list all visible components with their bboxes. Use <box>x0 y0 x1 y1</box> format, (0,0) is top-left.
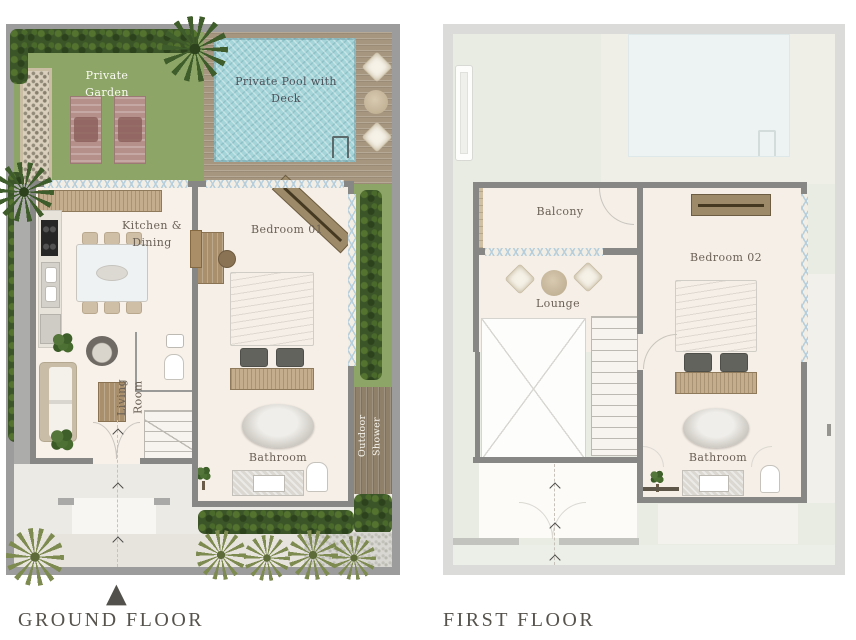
wall-divider-lower <box>637 370 643 503</box>
ghost-door-handle <box>827 424 831 436</box>
wall-bath-bottom <box>637 497 807 503</box>
hedge-right-strip <box>360 190 382 380</box>
private-pool-label: Private Pool with Deck <box>226 74 346 107</box>
sink-basin <box>45 267 57 283</box>
wall-left-lower <box>475 352 480 463</box>
ghost-wall-stub <box>559 538 639 545</box>
ground-floor-plan: Private Garden Private Pool with Deck Ki… <box>6 24 400 575</box>
ground-floor-site: Private Garden Private Pool with Deck Ki… <box>14 32 392 567</box>
staircase <box>144 410 194 460</box>
bed-bench <box>675 372 757 394</box>
dining-chair-icon <box>126 301 142 314</box>
lounge-pouf-icon <box>541 270 567 296</box>
bedroom1-bed <box>230 272 312 388</box>
bed-duvet <box>675 280 757 352</box>
bathroom-label: Bathroom <box>226 450 330 467</box>
dining-chair-icon <box>82 301 98 314</box>
hedge-right-bottom <box>354 494 392 534</box>
lounge-label: Lounge <box>513 296 603 313</box>
porch-wall-stub <box>58 498 74 505</box>
kitchen-sink <box>41 262 60 308</box>
bed-duvet <box>230 272 314 346</box>
wall-divider-upper <box>637 182 643 334</box>
bedroom2-console <box>691 194 771 216</box>
wall-left <box>30 181 36 464</box>
first-floor-title: FIRST FLOOR <box>443 609 595 632</box>
porch-wall-stub <box>154 498 170 505</box>
dining-chair-icon <box>104 301 120 314</box>
folding-door-balcony <box>485 248 603 256</box>
vanity-mirror <box>253 475 285 492</box>
staircase <box>591 316 638 456</box>
outdoor-shower-label: Outdoor Shower <box>356 404 390 468</box>
table-platter <box>96 265 128 281</box>
ghost-right-strip <box>807 274 835 503</box>
palm-tree-icon <box>196 530 246 580</box>
toilet-icon <box>760 465 780 493</box>
wc-sink-icon <box>166 334 184 348</box>
plant-icon <box>52 332 74 354</box>
stove-icon <box>41 220 58 256</box>
pool-ladder-icon <box>332 136 349 158</box>
vanity-mirror <box>699 475 729 492</box>
side-window-ledge <box>455 65 473 161</box>
living-room-label: Living Room <box>114 366 146 428</box>
window-kitchen-top <box>44 180 188 188</box>
window-bedroom-top <box>206 180 344 188</box>
bed-pillow-icon <box>240 348 268 367</box>
palm-tree-icon <box>244 535 290 581</box>
palm-tree-icon <box>162 16 228 82</box>
kitchen-counter-top <box>38 190 162 212</box>
bathtub-icon <box>683 408 749 448</box>
desk-chair-icon <box>218 250 236 268</box>
entrance-marker-icon: ▲ <box>106 580 127 607</box>
window-bedroom2-right <box>801 194 808 362</box>
first-floor-plan: Balcony Lounge Bedroom 02 Bathroom <box>443 24 845 575</box>
bath-bench <box>643 487 679 491</box>
ghost-pool-ladder <box>758 130 776 156</box>
bed-pillow-icon <box>720 353 748 372</box>
wall-bottom-right <box>192 501 354 507</box>
bathroom-vanity <box>232 470 304 496</box>
palm-tree-icon <box>332 536 376 580</box>
palm-tree-icon <box>6 528 64 586</box>
wall-bottom-left-b <box>140 458 198 464</box>
palm-tree-icon <box>288 530 338 580</box>
bed-pillow-icon <box>276 348 304 367</box>
deck-pouf-icon <box>364 90 388 114</box>
hedge-corner-left <box>10 29 28 84</box>
kitchen-dining-label: Kitchen & Dining <box>112 218 192 251</box>
ghost-wall-stub <box>453 538 519 545</box>
toilet-icon <box>306 462 328 492</box>
balcony-wall-stub <box>603 248 643 255</box>
bedroom-01-label: Bedroom 01 <box>232 222 342 239</box>
armchair-icon <box>86 336 118 366</box>
ground-floor-title: GROUND FLOOR <box>18 609 204 632</box>
bed-pillow-icon <box>684 353 712 372</box>
window-bedroom-right <box>348 194 356 366</box>
plant-icon <box>50 428 74 452</box>
plant-stand <box>202 481 205 490</box>
wall-left-upper <box>473 182 479 352</box>
bathroom-vanity <box>682 470 744 496</box>
balcony-label: Balcony <box>515 204 605 221</box>
bedroom2-bed <box>675 280 755 392</box>
lounger-pad <box>118 117 142 142</box>
balcony-wall-stub <box>473 248 485 255</box>
ghost-bottom-right <box>658 504 798 544</box>
ledge-inner-line <box>460 72 468 154</box>
void-open-to-below <box>481 318 586 460</box>
bedroom-02-label: Bedroom 02 <box>671 250 781 267</box>
bed-bench <box>230 368 314 390</box>
sun-lounger-icon <box>114 96 146 164</box>
entry-porch <box>72 498 156 534</box>
plant-icon <box>650 470 664 484</box>
bathtub-icon <box>242 404 314 448</box>
wall-bottom-left-a <box>30 458 93 464</box>
bathroom-label: Bathroom <box>671 450 765 467</box>
sun-lounger-icon <box>70 96 102 164</box>
lounger-pad <box>74 117 98 142</box>
plant-icon <box>196 466 211 481</box>
private-garden-label: Private Garden <box>72 68 142 101</box>
sink-basin <box>45 286 57 302</box>
first-floor-site: Balcony Lounge Bedroom 02 Bathroom <box>453 34 835 565</box>
ghost-bottom-strip <box>453 545 835 565</box>
wc-toilet-icon <box>164 354 184 380</box>
sofa-cushions <box>49 367 72 437</box>
entry-path-line <box>554 464 556 565</box>
